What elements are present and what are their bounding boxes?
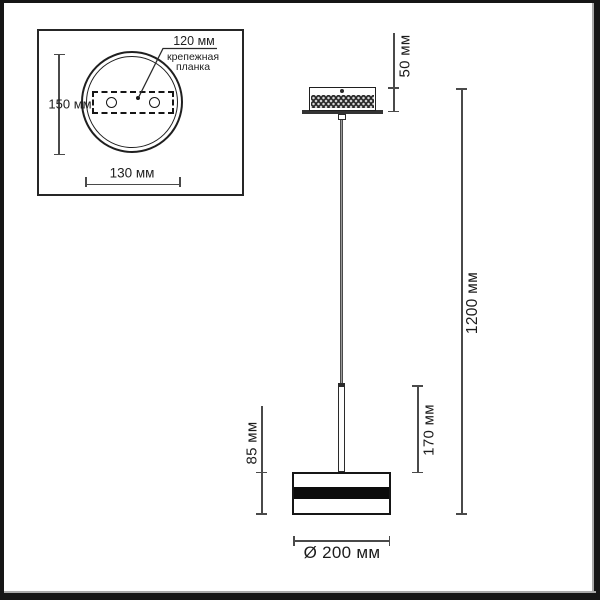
canopy-mesh-band [311, 95, 374, 108]
plate-width-label: 120 мм [173, 34, 215, 48]
frame-right [594, 0, 600, 600]
dim-170-line [417, 385, 419, 473]
dim-diameter-label: Ø 200 мм [304, 543, 381, 563]
dim-tick [388, 111, 399, 113]
dim-tick [456, 513, 467, 515]
dim-150-label: 150 мм [48, 97, 91, 112]
plate-name-line2: планка [176, 61, 210, 73]
dim-tick [389, 536, 391, 546]
dim-50-line [393, 33, 395, 112]
dim-tick [256, 513, 267, 515]
dim-85-label: 85 мм [244, 422, 261, 465]
dim-170-label: 170 мм [421, 404, 438, 456]
dim-1200-label: 1200 мм [464, 272, 482, 334]
frame-bottom [0, 593, 600, 600]
dim-tick [293, 536, 295, 546]
frame-top [0, 0, 600, 3]
dim-tick [54, 54, 65, 56]
inset-top-view-box: 120 мм крепежная планка 150 мм 130 мм [37, 29, 244, 196]
dim-tick [256, 472, 267, 474]
dim-tick [388, 87, 399, 89]
suspension-wire [340, 120, 343, 384]
dim-tick [456, 88, 467, 90]
frame-left [0, 0, 4, 600]
dim-tick [179, 177, 181, 187]
dim-85-line [261, 406, 263, 515]
dim-50-label: 50 мм [397, 35, 414, 78]
dim-tick [54, 154, 65, 156]
lampshade [292, 472, 391, 516]
lampshade-black-band [294, 487, 389, 500]
stem-tube [338, 386, 344, 472]
dim-1200-line [461, 88, 463, 514]
dim-130-label: 130 мм [110, 166, 155, 181]
dim-diameter-line [293, 540, 390, 542]
dim-tick [412, 472, 423, 474]
dimension-diagram: 120 мм крепежная планка 150 мм 130 мм 50… [0, 0, 600, 600]
dim-tick [412, 385, 423, 387]
dim-130-line [85, 184, 180, 186]
dim-tick [85, 177, 87, 187]
